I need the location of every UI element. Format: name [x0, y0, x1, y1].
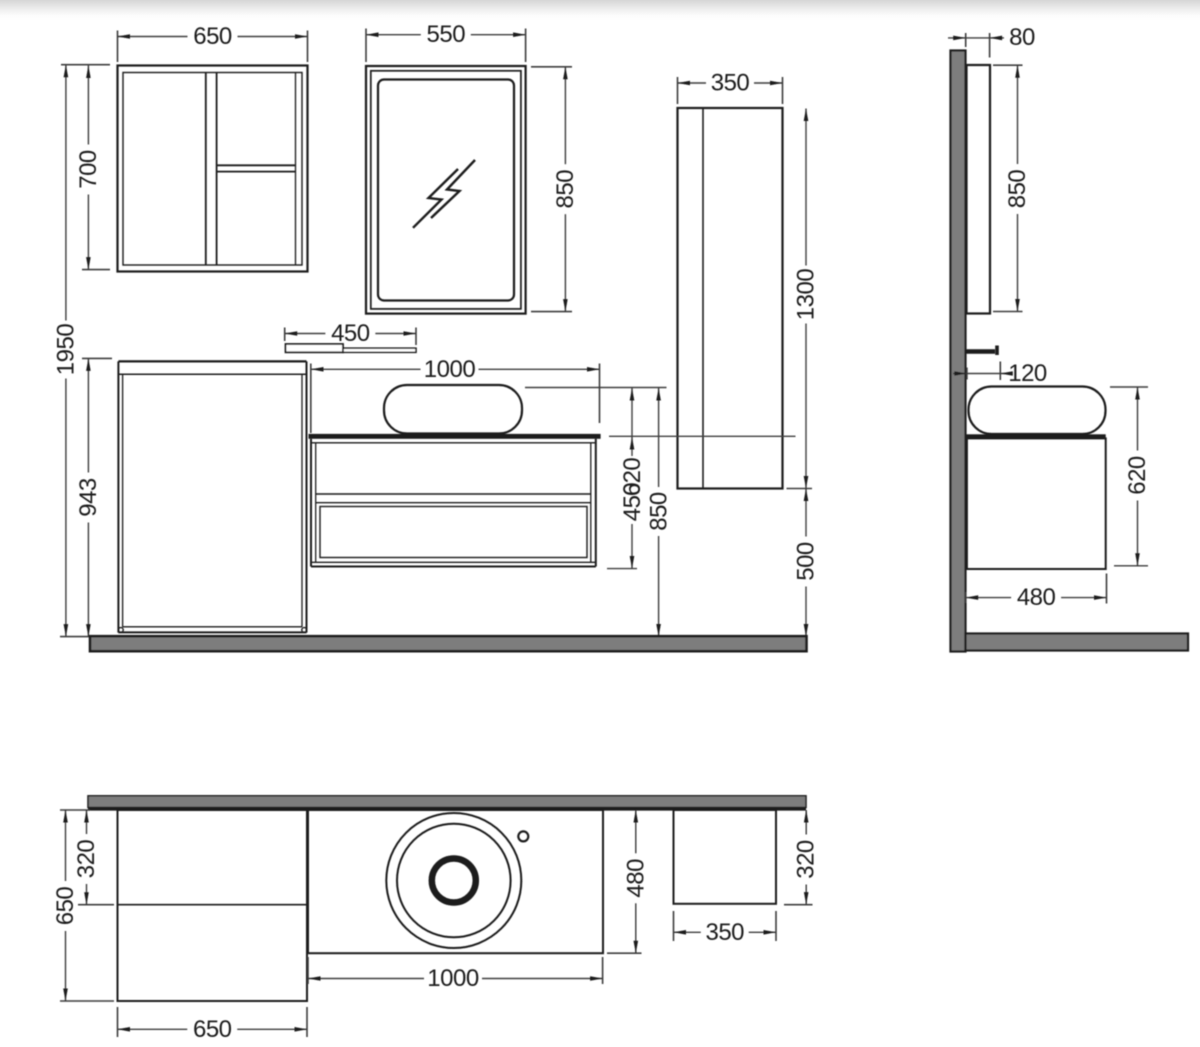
svg-text:450: 450 — [619, 483, 646, 522]
svg-text:1950: 1950 — [52, 324, 79, 376]
svg-text:620: 620 — [1124, 456, 1151, 495]
svg-text:1000: 1000 — [427, 965, 479, 992]
svg-text:700: 700 — [75, 150, 102, 189]
svg-text:480: 480 — [622, 859, 649, 898]
svg-text:120: 120 — [1008, 360, 1047, 387]
svg-text:650: 650 — [193, 23, 232, 50]
svg-text:550: 550 — [427, 21, 466, 48]
svg-text:350: 350 — [705, 919, 744, 946]
svg-text:850: 850 — [646, 492, 673, 531]
svg-text:850: 850 — [552, 170, 579, 209]
svg-text:450: 450 — [331, 320, 370, 347]
svg-text:500: 500 — [793, 542, 820, 581]
svg-text:350: 350 — [711, 70, 750, 97]
svg-text:80: 80 — [1009, 24, 1035, 51]
svg-text:650: 650 — [193, 1016, 232, 1043]
svg-text:320: 320 — [73, 840, 100, 879]
svg-text:480: 480 — [1017, 584, 1056, 611]
svg-text:1300: 1300 — [793, 269, 820, 321]
svg-text:650: 650 — [52, 887, 79, 926]
svg-text:1000: 1000 — [424, 356, 476, 383]
svg-text:320: 320 — [793, 840, 820, 879]
svg-text:943: 943 — [75, 478, 102, 517]
svg-text:850: 850 — [1004, 170, 1031, 209]
